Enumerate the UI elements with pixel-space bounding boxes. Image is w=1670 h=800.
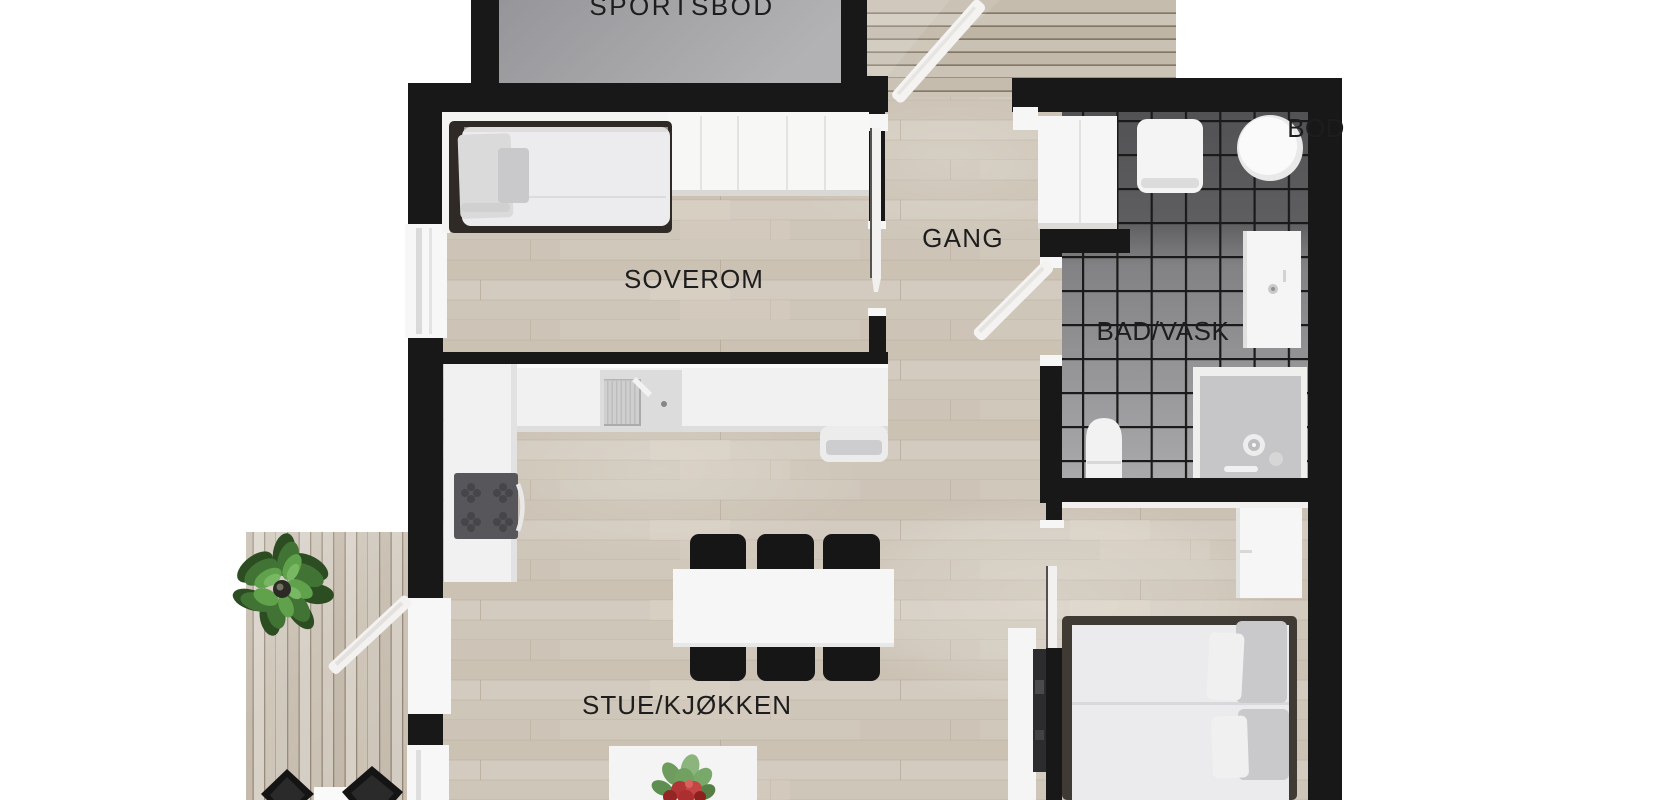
svg-text:SOVEROM: SOVEROM [624, 264, 764, 294]
svg-text:BOD: BOD [1287, 113, 1345, 143]
svg-text:SPORTSBOD: SPORTSBOD [589, 0, 774, 21]
svg-text:GANG: GANG [922, 223, 1004, 253]
svg-text:STUE/KJØKKEN: STUE/KJØKKEN [582, 690, 792, 720]
svg-text:BAD/VASK: BAD/VASK [1097, 316, 1230, 346]
